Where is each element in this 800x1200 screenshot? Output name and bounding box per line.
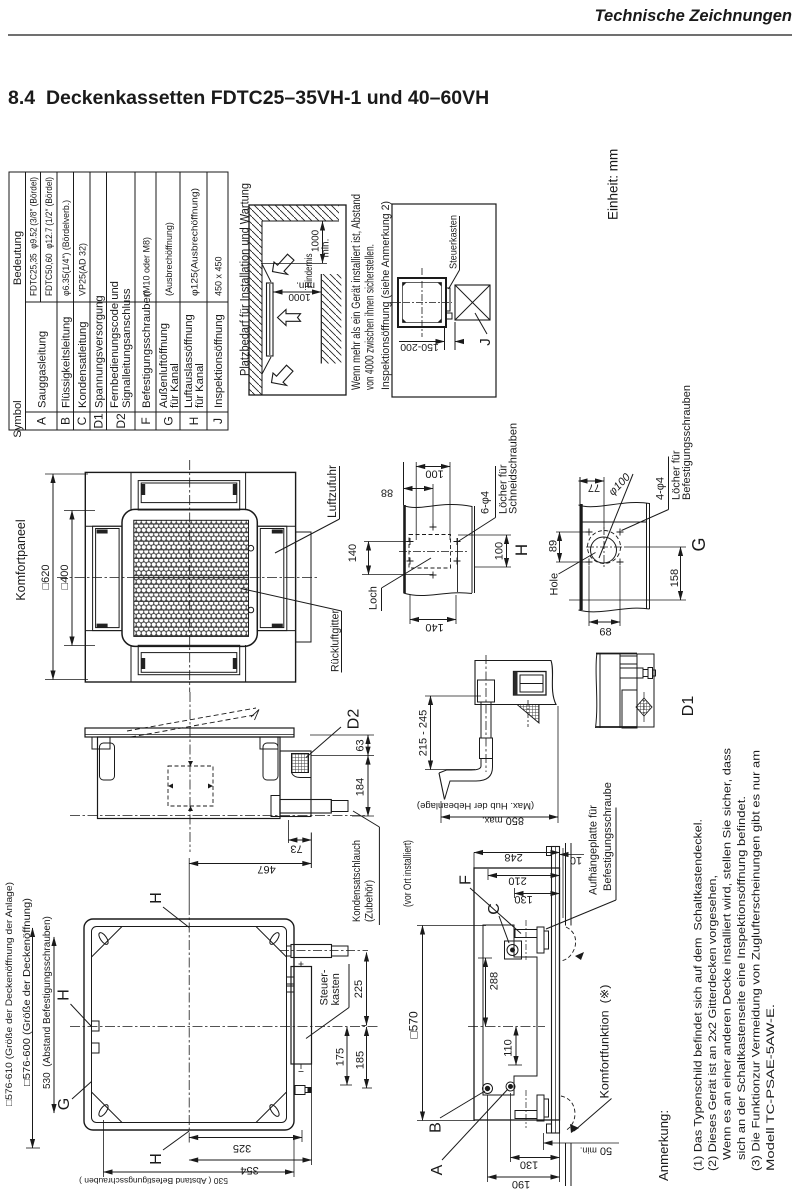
svg-text:6-φ4: 6-φ4 xyxy=(480,491,492,514)
svg-text:G: G xyxy=(162,416,176,425)
svg-text:(2) Dieses Gerät ist an 2x2 Gi: (2) Dieses Gerät ist an 2x2 Gitterdecken… xyxy=(707,875,719,1171)
svg-text:77: 77 xyxy=(588,482,600,494)
svg-text:von 4000 zwischen ihnen sicher: von 4000 zwischen ihnen sicherstellen. xyxy=(365,244,377,390)
svg-text:FDTC50,60 φ12.7 (1/2″ (Bördel: FDTC50,60 φ12.7 (1/2″ (Bördel) xyxy=(44,177,54,296)
svg-text:185: 185 xyxy=(355,1051,367,1069)
svg-text:140: 140 xyxy=(425,621,443,633)
svg-text:63: 63 xyxy=(355,739,367,751)
svg-text:□400: □400 xyxy=(59,565,71,590)
svg-text:H: H xyxy=(187,417,201,426)
svg-text:215 - 245: 215 - 245 xyxy=(418,710,430,756)
svg-text:184: 184 xyxy=(355,778,367,796)
svg-text:FDTC25,35 φ9.52 (3/8″ (Bördel: FDTC25,35 φ9.52 (3/8″ (Bördel) xyxy=(29,177,39,296)
svg-text:248: 248 xyxy=(504,851,522,863)
svg-text:VP25(AD 32): VP25(AD 32) xyxy=(78,243,88,296)
svg-text:Kondensatschlauch: Kondensatschlauch xyxy=(351,840,363,922)
svg-text:Komfortfunktion (※): Komfortfunktion (※) xyxy=(598,985,612,1099)
svg-text:B: B xyxy=(428,1122,445,1133)
svg-text:225: 225 xyxy=(353,980,365,998)
svg-text:(Ausbrechöffnung): (Ausbrechöffnung) xyxy=(164,222,174,296)
svg-text:158: 158 xyxy=(669,569,681,587)
svg-text:1000: 1000 xyxy=(288,291,311,302)
svg-text:288: 288 xyxy=(489,972,501,990)
svg-text:Schneidschrauben: Schneidschrauben xyxy=(508,423,520,514)
svg-text:φ125(Ausbrechöffnung): φ125(Ausbrechöffnung) xyxy=(190,188,200,296)
svg-text:210: 210 xyxy=(508,875,526,887)
svg-text:H: H xyxy=(56,989,73,1001)
svg-text:850 max.: 850 max. xyxy=(482,815,524,827)
svg-text:Luftzufuhr: Luftzufuhr xyxy=(327,465,339,518)
svg-text:φ100: φ100 xyxy=(607,471,634,498)
svg-text:für Kanal: für Kanal xyxy=(169,363,181,408)
svg-text:min.: min. xyxy=(321,239,332,258)
svg-text:Befestigungsschrauben: Befestigungsschrauben xyxy=(141,291,153,408)
svg-text:Befestigungsschrauben: Befestigungsschrauben xyxy=(681,385,693,500)
svg-text:Hole: Hole xyxy=(549,573,561,596)
svg-text:140: 140 xyxy=(347,544,359,562)
svg-text:(3) Die Funktionzur Vermeidung: (3) Die Funktionzur Vermeidung von Zuglu… xyxy=(751,750,763,1171)
svg-text:C: C xyxy=(75,416,89,425)
svg-text:(vor Ort installiert): (vor Ort installiert) xyxy=(402,840,414,907)
svg-text:Inspektionsöffnung: Inspektionsöffnung xyxy=(213,314,225,408)
svg-text:F: F xyxy=(139,417,153,424)
svg-text:8.4 Deckenkassetten FDTC25–35: 8.4 Deckenkassetten FDTC25–35VH-1 und 40… xyxy=(8,87,489,109)
svg-text:Loch: Loch xyxy=(368,586,380,610)
svg-text:H: H xyxy=(148,1153,165,1165)
svg-text:φ6.35(1/4″) (Bördelverb.): φ6.35(1/4″) (Bördelverb.) xyxy=(61,200,71,296)
svg-text:(Zubehör): (Zubehör) xyxy=(364,880,376,922)
svg-text:Befestigungsschraube: Befestigungsschraube xyxy=(602,782,614,891)
svg-text:190: 190 xyxy=(512,1178,530,1190)
svg-text:(M10 oder M8): (M10 oder M8) xyxy=(142,237,152,296)
svg-text:□620: □620 xyxy=(40,565,52,590)
svg-text:D1: D1 xyxy=(92,413,106,429)
svg-text:J: J xyxy=(211,418,225,424)
svg-text:Aufhängeplatte für: Aufhängeplatte für xyxy=(588,805,600,895)
svg-text:4-φ4: 4-φ4 xyxy=(655,477,667,500)
svg-text:325: 325 xyxy=(233,1142,251,1154)
svg-text:Modell TC-PSAE-5AW-E.: Modell TC-PSAE-5AW-E. xyxy=(765,1004,777,1171)
svg-text:Wenn mehr als ein Gerät instal: Wenn mehr als ein Gerät installiert ist,… xyxy=(351,194,363,390)
svg-text:89: 89 xyxy=(548,540,560,552)
svg-text:Hindernis: Hindernis xyxy=(304,254,315,288)
svg-text:□576-600 (Größe der Deckenöffn: □576-600 (Größe der Deckenöffnung) xyxy=(22,898,33,1086)
svg-text:D2: D2 xyxy=(114,413,128,429)
svg-text:(Max. Hub der Hebeanlage): (Max. Hub der Hebeanlage) xyxy=(417,800,534,811)
svg-text:73: 73 xyxy=(290,843,302,855)
svg-text:Wenn es an einer anderen Decke: Wenn es an einer anderen Decke installie… xyxy=(722,748,734,1160)
svg-text:130: 130 xyxy=(520,1159,538,1171)
svg-text:110: 110 xyxy=(503,1039,515,1057)
svg-text:□570: □570 xyxy=(407,1011,421,1039)
svg-text:C: C xyxy=(486,903,503,915)
svg-text:(1) Das Typenschild befindet s: (1) Das Typenschild befindet sich auf de… xyxy=(693,819,705,1171)
svg-text:Symbol: Symbol xyxy=(12,400,24,437)
svg-text:175: 175 xyxy=(335,1048,347,1066)
svg-text:Steuerkasten: Steuerkasten xyxy=(449,215,460,269)
svg-text:A: A xyxy=(429,1164,446,1175)
svg-text:100: 100 xyxy=(494,542,506,560)
svg-text:H: H xyxy=(148,892,165,904)
svg-text:450 x 450: 450 x 450 xyxy=(214,256,224,296)
svg-text:150-200: 150-200 xyxy=(400,341,439,353)
svg-text:Inspektionsöffnung (siehe Anme: Inspektionsöffnung (siehe Anmerkung 2) xyxy=(380,201,392,390)
svg-text:Flüssigkeitsleitung: Flüssigkeitsleitung xyxy=(61,317,73,408)
svg-text:130: 130 xyxy=(514,893,532,905)
svg-text:D2: D2 xyxy=(346,709,363,730)
svg-text:50 min.: 50 min. xyxy=(580,1145,612,1157)
svg-text:100: 100 xyxy=(425,468,443,480)
svg-text:Einheit: mm: Einheit: mm xyxy=(606,149,621,220)
svg-text:88: 88 xyxy=(381,487,393,499)
svg-text:B: B xyxy=(59,417,73,425)
svg-text:sich an der Schaltkastenseite: sich an der Schaltkastenseite eine Inspe… xyxy=(736,796,748,1160)
svg-text:D1: D1 xyxy=(680,696,697,717)
svg-text:□576-610 (Größe der Deckenöffn: □576-610 (Größe der Deckenöffnung der An… xyxy=(4,882,15,1106)
svg-text:F: F xyxy=(458,875,475,885)
svg-text:467: 467 xyxy=(257,863,275,875)
svg-text:Signalleitungsanschluss: Signalleitungsanschluss xyxy=(121,288,133,408)
svg-text:530 ( Abstand Befestigungsschr: 530 ( Abstand Befestigungsschrauben ) xyxy=(79,1176,228,1186)
svg-text:G: G xyxy=(689,537,709,551)
svg-text:Kondensatleitung: Kondensatleitung xyxy=(77,322,89,408)
svg-text:Spannungsversorgung: Spannungsversorgung xyxy=(94,295,106,408)
svg-text:68: 68 xyxy=(599,627,611,639)
svg-text:Steuer-: Steuer- xyxy=(319,969,331,1005)
svg-text:Sauggasleitung: Sauggasleitung xyxy=(37,331,49,408)
svg-text:Komfortpaneel: Komfortpaneel xyxy=(14,519,28,600)
svg-text:Rückluftgitter: Rückluftgitter xyxy=(330,610,342,672)
svg-text:Anmerkung:: Anmerkung: xyxy=(656,1110,671,1181)
svg-text:Fernbedienungscode und: Fernbedienungscode und xyxy=(109,281,121,408)
svg-text:J: J xyxy=(477,338,494,346)
svg-text:530 (Abstand Befestigungsschr: 530 (Abstand Befestigungsschrauben) xyxy=(42,916,53,1089)
svg-text:H: H xyxy=(512,544,531,556)
svg-text:kasten: kasten xyxy=(330,973,342,1005)
svg-text:Technische Zeichnungen: Technische Zeichnungen xyxy=(595,7,792,25)
svg-text:A: A xyxy=(35,417,49,425)
svg-text:G: G xyxy=(56,1098,73,1110)
svg-text:354: 354 xyxy=(240,1164,258,1176)
svg-text:für Kanal: für Kanal xyxy=(194,363,206,408)
svg-text:10: 10 xyxy=(570,854,582,866)
svg-text:Bedeutung: Bedeutung xyxy=(12,231,24,285)
